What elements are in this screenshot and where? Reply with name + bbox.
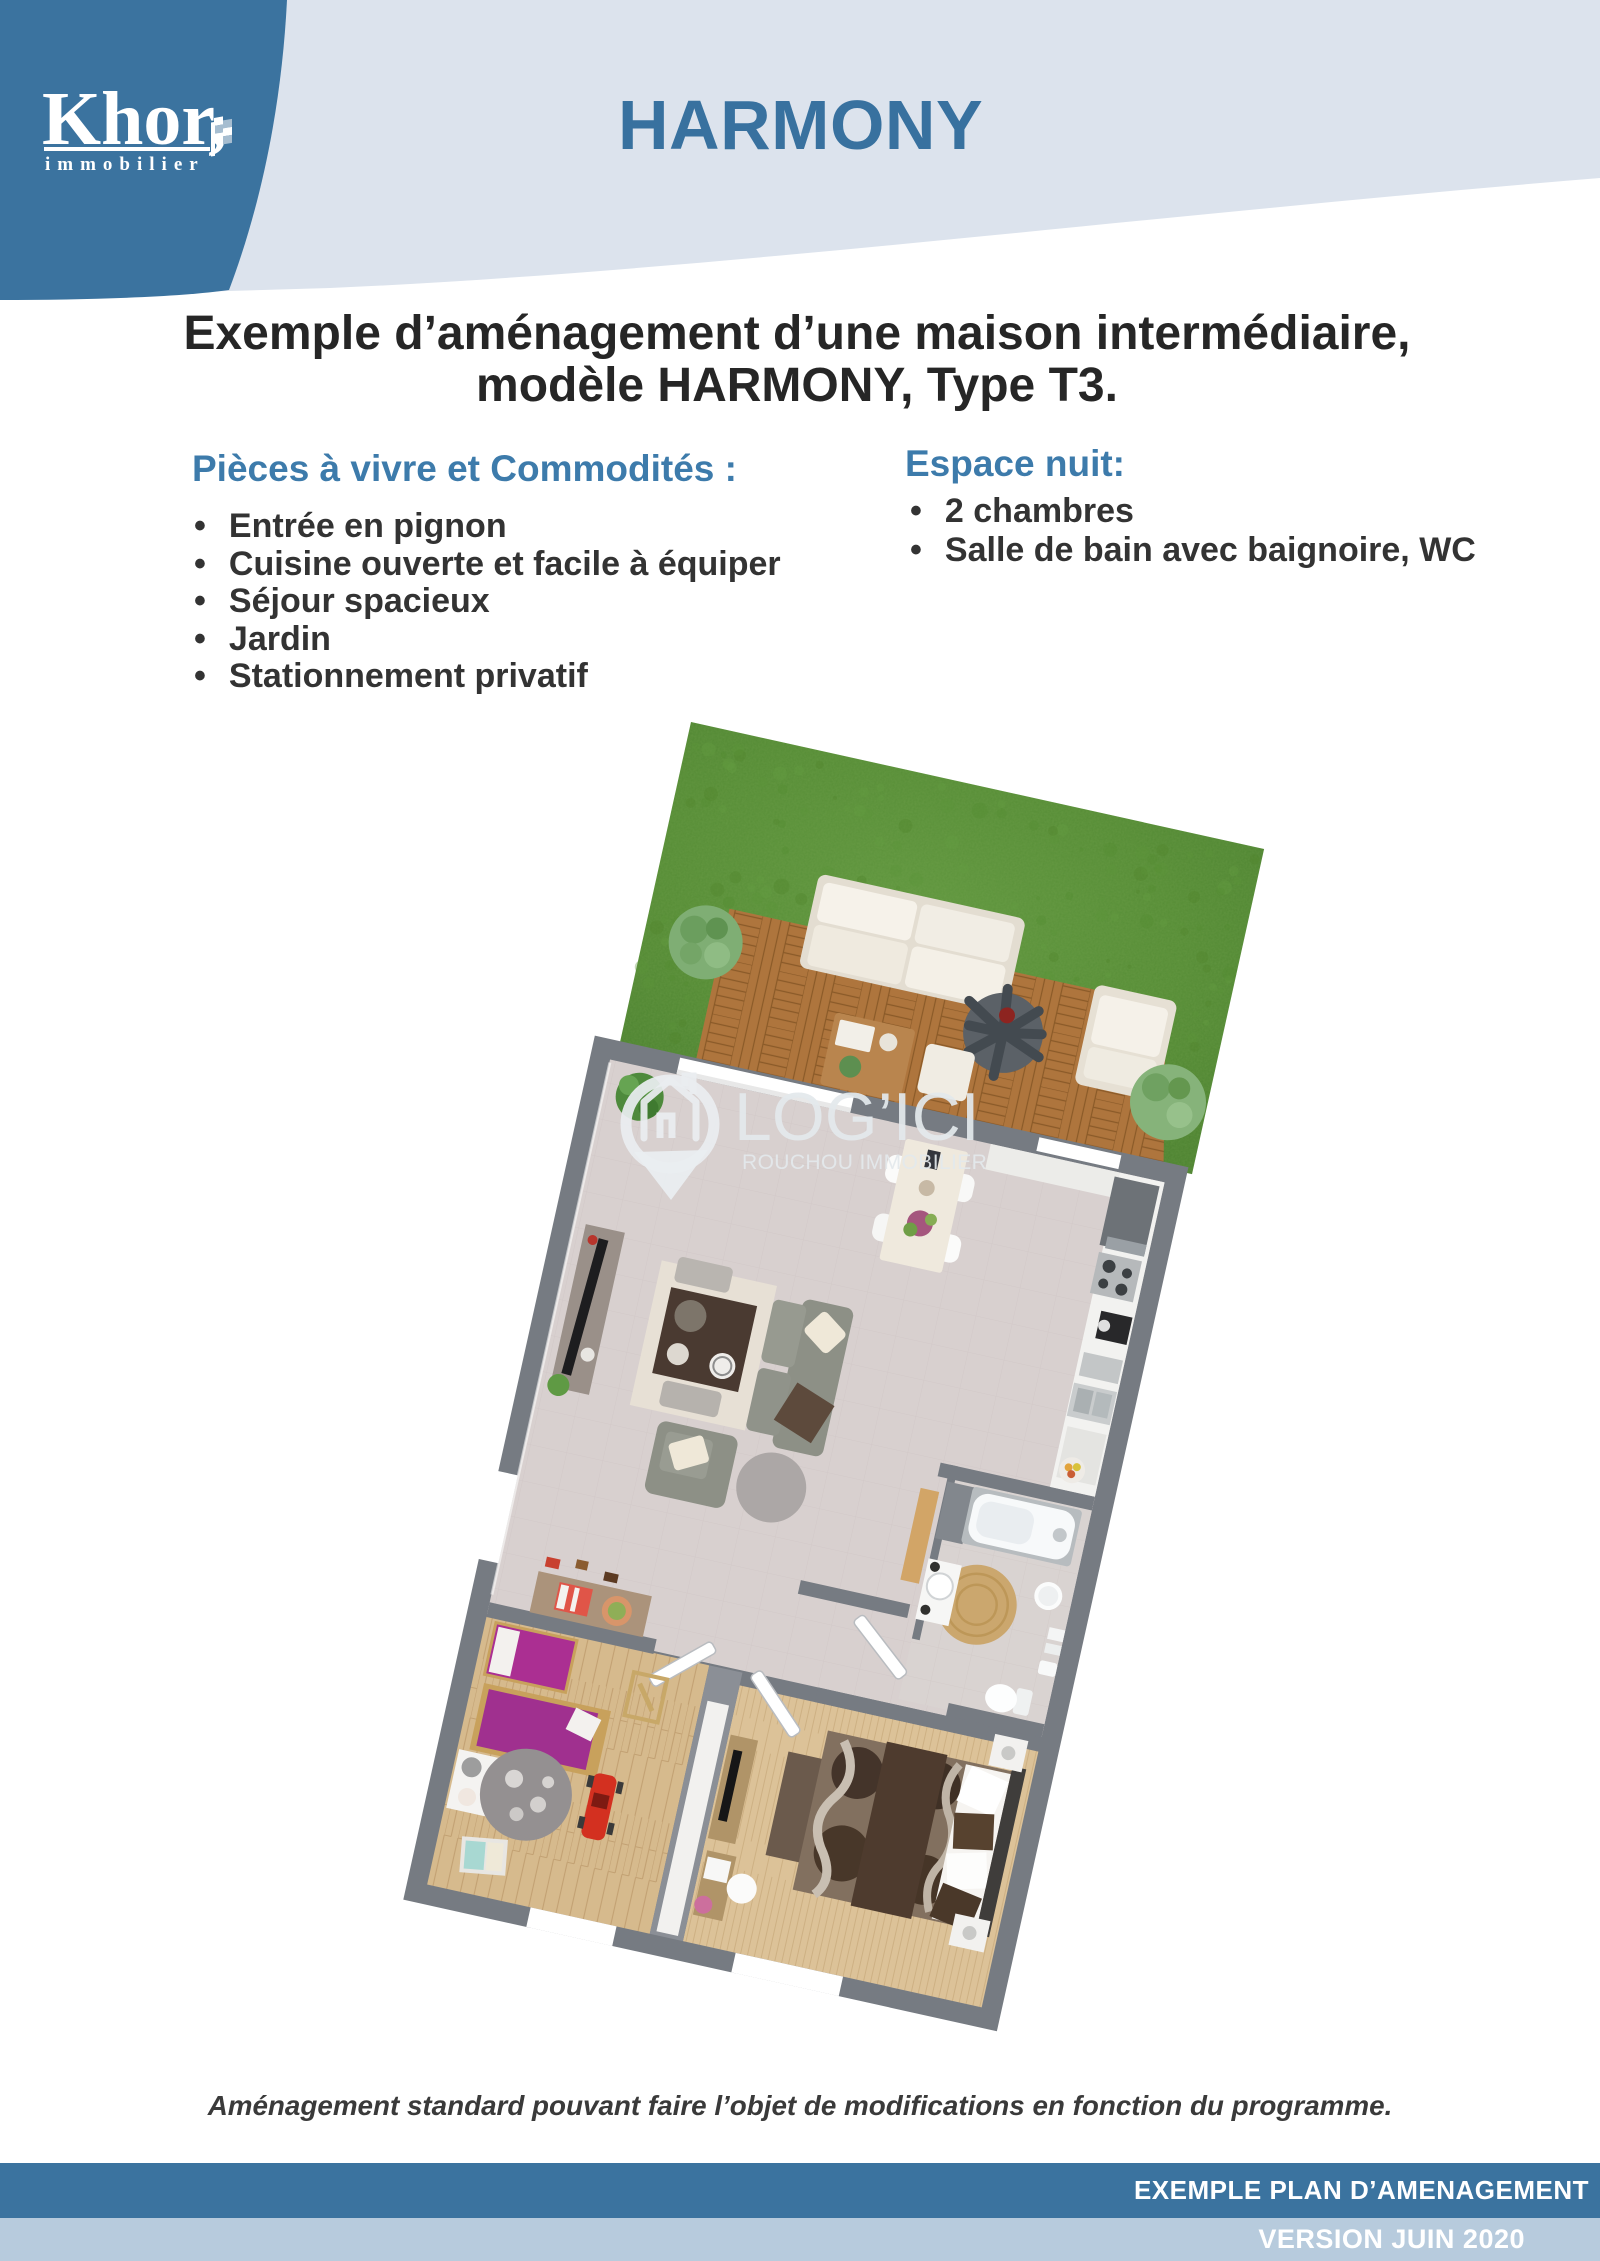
svg-text:ROUCHOU IMMOBILIER: ROUCHOU IMMOBILIER bbox=[742, 1151, 987, 1174]
svg-text:LOG’ICI: LOG’ICI bbox=[734, 1079, 980, 1155]
svg-text:immobilier: immobilier bbox=[45, 154, 205, 175]
